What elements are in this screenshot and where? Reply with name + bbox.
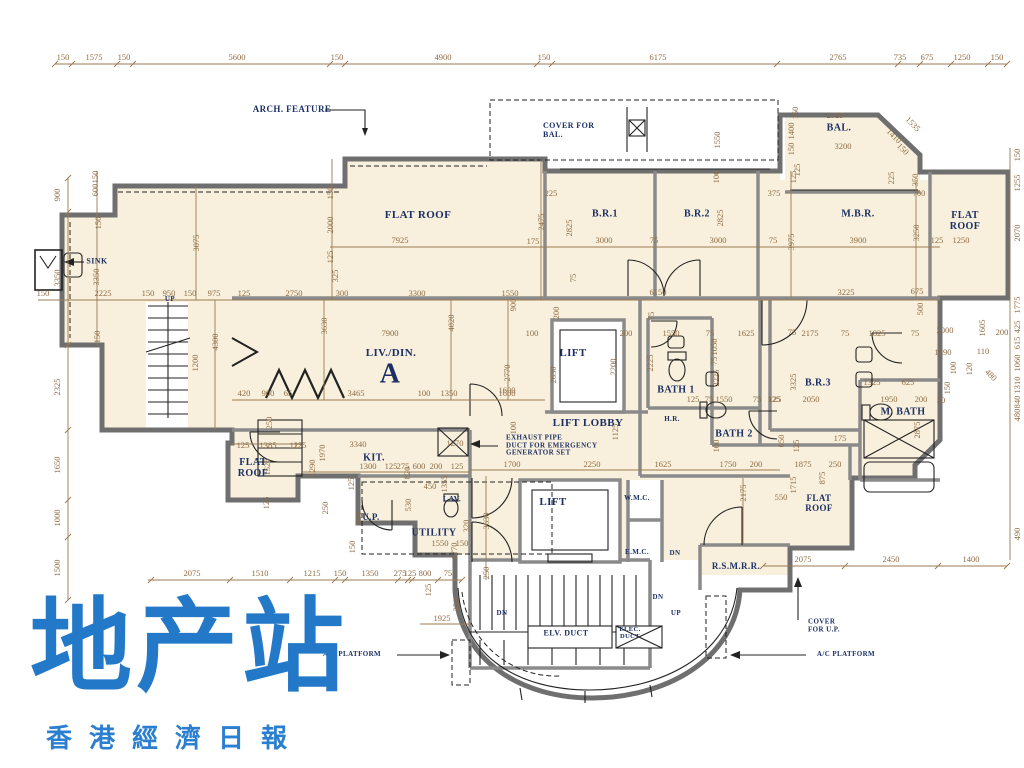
dim-label: 2225: [646, 355, 655, 372]
dim-label: 6150: [650, 288, 667, 297]
dim-label: 1925: [434, 614, 451, 623]
dim-label: 2325: [53, 379, 62, 396]
dim-label: 3225: [838, 288, 855, 297]
dim-label: 1550: [663, 329, 680, 338]
dim-label: 3630: [320, 318, 329, 335]
dim-label: 125: [290, 441, 303, 450]
plan-label-elv-duct: ELV. DUCT: [544, 630, 589, 639]
dim-label: 350: [911, 174, 920, 187]
dim-label: 1500: [53, 560, 62, 577]
dim-label: 420: [238, 389, 251, 398]
dim-label: 2200: [609, 359, 618, 376]
plan-label-liv-din: LIV./DIN.: [366, 347, 416, 359]
dim-label: 2475: [537, 214, 546, 231]
dim-label: 2075: [184, 569, 201, 578]
dim-label: 1890: [935, 348, 952, 357]
dim-label: 125: [347, 478, 356, 491]
dim-label: 600: [413, 462, 426, 471]
dim-label: 3250: [912, 225, 921, 242]
dim-label: 100: [526, 329, 539, 338]
dim-label: 3975: [787, 234, 796, 251]
dim-label: 150: [538, 53, 551, 62]
dim-label: 1575: [86, 53, 103, 62]
plan-label-emc: E.M.C.: [625, 549, 649, 557]
plan-label-unit-a: A: [380, 360, 401, 391]
plan-label-elec-duct: ELEC. DUCT: [619, 626, 640, 640]
dim-label: 150: [348, 541, 357, 554]
dim-label: 6175: [650, 53, 667, 62]
dim-label: 200: [430, 462, 443, 471]
dim-label: 125: [238, 289, 251, 298]
dim-label: 150: [787, 143, 796, 156]
dim-label: 1060: [1013, 355, 1022, 372]
dim-label: 150: [334, 569, 347, 578]
dim-label: 2750: [286, 289, 303, 298]
dim-label: 250: [265, 417, 274, 430]
dim-label: 1625: [738, 329, 755, 338]
plan-label-m-bath: M. BATH: [881, 407, 926, 418]
dim-label: 200: [915, 395, 928, 404]
plan-label-hr: H.R.: [664, 416, 680, 424]
dim-label: 3300: [409, 289, 426, 298]
dim-label: 3075: [192, 235, 201, 252]
plan-label-lift-lobby: LIFT LOBBY: [553, 417, 624, 429]
dim-label: 125: [237, 441, 250, 450]
dim-label: 550: [775, 493, 788, 502]
dim-label: 1350: [441, 389, 458, 398]
dim-label: 1000: [53, 510, 62, 527]
plan-label-br3: B.R.3: [805, 378, 831, 389]
dim-label: 150: [57, 53, 70, 62]
plan-label-bath2: BATH 2: [715, 429, 753, 440]
dim-label: 65: [284, 389, 293, 398]
dim-label: 735: [894, 53, 907, 62]
plan-label-arch-feature: ARCH. FEATURE: [253, 105, 332, 115]
dim-label: 2875: [913, 422, 922, 439]
dim-label: 530: [404, 499, 413, 512]
dim-label: 1715: [789, 477, 798, 494]
dim-label: 650: [777, 435, 786, 448]
dim-label: 1385: [260, 441, 277, 450]
dim-label: 75: [710, 357, 719, 366]
dim-label: 1950: [881, 395, 898, 404]
dim-label: 1200: [191, 355, 200, 372]
dim-label: 2225: [712, 370, 721, 387]
plan-label-dn-3: DN: [497, 610, 508, 618]
dim-label: 1250: [953, 236, 970, 245]
dim-label: 1775: [1013, 297, 1022, 314]
dim-label: 840: [1013, 396, 1022, 409]
dim-label: 75: [650, 236, 659, 245]
dim-label: 125: [424, 584, 433, 597]
dim-label: 50: [937, 396, 946, 405]
dim-label: 3465: [348, 389, 365, 398]
dim-label: 1550: [716, 395, 733, 404]
dim-label: 150: [94, 217, 103, 230]
dim-label: 2175: [802, 329, 819, 338]
dim-label: 2050: [803, 395, 820, 404]
dim-label: 250: [482, 567, 491, 580]
dim-label: 110: [977, 347, 989, 356]
dim-label: 150: [142, 289, 155, 298]
dim-label: 200: [552, 307, 561, 320]
dim-label: 975: [208, 289, 221, 298]
dim-label: 225: [545, 189, 558, 198]
dim-label: 150: [331, 53, 344, 62]
dim-label: 75: [706, 329, 715, 338]
dim-label: 3340: [350, 440, 367, 449]
dim-label: 325: [331, 270, 340, 283]
dim-label: 150: [118, 53, 131, 62]
dim-label: 1510: [252, 569, 269, 578]
plan-label-kit: KIT.: [363, 453, 385, 464]
dim-label: 2225: [95, 289, 112, 298]
dim-label: 4300: [211, 334, 220, 351]
dim-label: 2250: [584, 460, 601, 469]
dim-label: 3900: [850, 236, 867, 245]
dim-label: 1650: [53, 457, 62, 474]
dim-label: 250: [321, 502, 330, 515]
dim-label: 1970: [318, 445, 327, 462]
dim-label: 1550: [713, 132, 722, 149]
dim-label: 250: [452, 599, 461, 612]
dim-label: 100: [509, 422, 518, 435]
dim-label: 3350: [92, 269, 101, 286]
dim-label: 300: [336, 289, 349, 298]
dim-label: 900: [262, 389, 275, 398]
dim-label: 200: [996, 328, 1009, 337]
dim-label: 490: [1013, 528, 1022, 541]
dim-label: 150: [326, 187, 335, 200]
dim-label: 1400: [787, 123, 796, 140]
dim-label: 150: [991, 53, 1004, 62]
dim-label: 150: [91, 171, 100, 184]
dim-label: 75: [911, 329, 920, 338]
dim-label: 100: [949, 362, 958, 375]
dim-label: 5600: [229, 53, 246, 62]
dim-label: 1825: [869, 329, 886, 338]
plan-label-lav: LAV.: [443, 496, 461, 505]
plan-label-br1: B.R.1: [592, 209, 618, 220]
plan-label-flat-roof-bottom-right: FLAT ROOF: [805, 494, 833, 514]
dim-label: 1290: [308, 460, 317, 477]
dim-label: 75: [569, 274, 578, 283]
dim-label: 820: [403, 467, 412, 480]
dim-label: 800: [419, 569, 432, 578]
dim-label: 7900: [382, 329, 399, 338]
dim-label: 625: [902, 378, 915, 387]
dim-label: 175: [834, 434, 847, 443]
dim-label: 3000: [710, 236, 727, 245]
dim-label: 850: [354, 512, 363, 525]
dim-label: 1700: [504, 460, 521, 469]
dim-label: 150: [1013, 149, 1022, 162]
dim-label: 100: [712, 171, 721, 184]
dim-label: 125: [931, 236, 944, 245]
dim-label: 1770: [450, 543, 459, 560]
plan-label-flat-roof-main: FLAT ROOF: [385, 209, 451, 221]
dim-label: 75: [788, 328, 797, 337]
plan-label-ac-platform-right: A/C PLATFORM: [817, 651, 875, 659]
dim-label: 125: [792, 440, 801, 453]
dim-label: 125: [769, 395, 782, 404]
dim-label: 700: [913, 189, 926, 198]
plan-label-lift-lower: LIFT: [539, 496, 566, 508]
plan-label-cover-for-bal: COVER FOR BAL.: [543, 122, 594, 140]
dim-label: 875: [818, 472, 827, 485]
dim-label: 2825: [565, 220, 574, 237]
dim-label: 1550: [432, 539, 449, 548]
plan-label-bal: BAL.: [827, 123, 852, 134]
plan-label-dn-2: DN: [653, 594, 664, 602]
dim-label: 1325: [864, 378, 881, 387]
dim-label: 1255: [1013, 175, 1022, 192]
dim-label: 2765: [830, 53, 847, 62]
dim-label: 125: [687, 395, 700, 404]
dim-label: 615: [1013, 337, 1022, 350]
dim-label: 175: [527, 237, 540, 246]
dim-label: 4900: [435, 53, 452, 62]
dim-label: 4020: [447, 315, 456, 332]
dim-label: 1350: [362, 569, 379, 578]
dim-label: 1600: [499, 386, 516, 395]
dim-label: 2770: [503, 365, 512, 382]
floor-plan-page: 1501575150560015049001506175276573567512…: [0, 0, 1024, 768]
dim-label: 2825: [716, 210, 725, 227]
dim-label: 150: [37, 289, 50, 298]
plan-label-flat-roof-left: FLAT ROOF: [238, 457, 269, 479]
dim-label: 675: [911, 287, 924, 296]
dim-label: 100: [712, 440, 721, 453]
dim-label: 1310: [1013, 377, 1022, 394]
dim-label: 225: [887, 172, 896, 185]
dim-label: 1215: [304, 569, 321, 578]
plan-label-lift-upper: LIFT: [559, 347, 586, 359]
dim-label: 480: [1013, 409, 1022, 422]
plan-label-bath1: BATH 1: [657, 385, 695, 396]
plan-label-wmc: W.M.C.: [624, 495, 650, 503]
dim-label: 1250: [954, 53, 971, 62]
plan-label-utility: UTILITY: [411, 528, 456, 539]
dim-label: 2000: [326, 217, 335, 234]
plan-label-dn-1: DN: [670, 550, 681, 558]
dim-label: 2000: [937, 326, 954, 335]
dim-label: 2630: [549, 367, 558, 384]
plan-label-flat-roof-right: FLAT ROOF: [950, 210, 981, 232]
plan-label-br2: B.R.2: [684, 209, 710, 220]
dim-label: 75: [705, 395, 714, 404]
dim-label: 600: [91, 184, 100, 197]
dim-label: 75: [647, 312, 656, 321]
dim-label: 3350: [53, 270, 62, 287]
dim-label: 125: [385, 462, 398, 471]
dim-label: 900: [509, 299, 518, 312]
dim-label: 100: [418, 389, 431, 398]
dim-label: 3630: [482, 513, 491, 530]
dim-label: 1625: [655, 460, 672, 469]
plan-label-rsmrr: R.S.M.R.R.: [712, 562, 760, 572]
plan-label-mbr: M.B.R.: [841, 209, 874, 220]
dim-label: 1875: [795, 460, 812, 469]
dim-label: 250: [829, 460, 842, 469]
dim-label: 500: [916, 303, 925, 316]
dim-label: 2175: [739, 485, 748, 502]
dim-label: 125: [262, 497, 271, 510]
dim-label: 1550: [502, 289, 519, 298]
plan-label-ac-platform-left: A/C PLATFORM: [323, 651, 381, 659]
dim-label: 675: [921, 53, 934, 62]
dim-label: 7925: [392, 236, 409, 245]
dim-label: 2525: [827, 111, 844, 120]
dim-label: 2075: [795, 555, 812, 564]
dim-label: 150: [93, 331, 102, 344]
plan-label-up-stair-bottom: UP: [671, 610, 681, 618]
dim-label: 75: [841, 329, 850, 338]
dim-label: 1605: [978, 320, 987, 337]
dim-label: 75: [769, 236, 778, 245]
dim-label: 150: [943, 382, 952, 395]
dim-label: 75: [753, 395, 762, 404]
dim-label: 125: [326, 251, 335, 264]
dim-label: 1355: [440, 476, 449, 493]
plan-label-up-stair-top: UP: [165, 296, 175, 304]
plan-label-cover-for-up: COVER FOR U.P.: [808, 618, 840, 633]
plan-label-sink: SINK: [86, 258, 107, 267]
dim-label: 450: [424, 482, 437, 491]
dim-label: 750: [444, 569, 457, 578]
dim-label: 200: [750, 460, 763, 469]
dim-label: 2450: [883, 555, 900, 564]
dim-label: 1400: [963, 555, 980, 564]
dim-label: 1050: [710, 339, 719, 356]
dim-label: 2070: [1013, 225, 1022, 242]
dim-label: 900: [53, 189, 62, 202]
dim-label: 1270: [447, 439, 464, 448]
plan-label-exhaust-pipe: EXHAUST PIPE DUCT FOR EMERGENCY GENERATO…: [506, 434, 597, 457]
dim-label: 150: [791, 107, 800, 120]
dim-label: 125: [451, 462, 464, 471]
dim-label: 125: [404, 569, 417, 578]
dim-label: 375: [768, 189, 781, 198]
dim-label: 150: [184, 289, 197, 298]
dim-label: 3000: [596, 236, 613, 245]
dim-label: 425: [1013, 321, 1022, 334]
dim-label: 3200: [835, 142, 852, 151]
dim-label: 3325: [789, 374, 798, 391]
dim-label: 320: [462, 520, 471, 533]
dim-label: 200: [620, 329, 633, 338]
dim-label: 1750: [720, 460, 737, 469]
dim-label: 125: [789, 171, 798, 184]
dim-label: 120: [965, 363, 974, 376]
plan-label-up-area: U.P.: [362, 513, 379, 523]
